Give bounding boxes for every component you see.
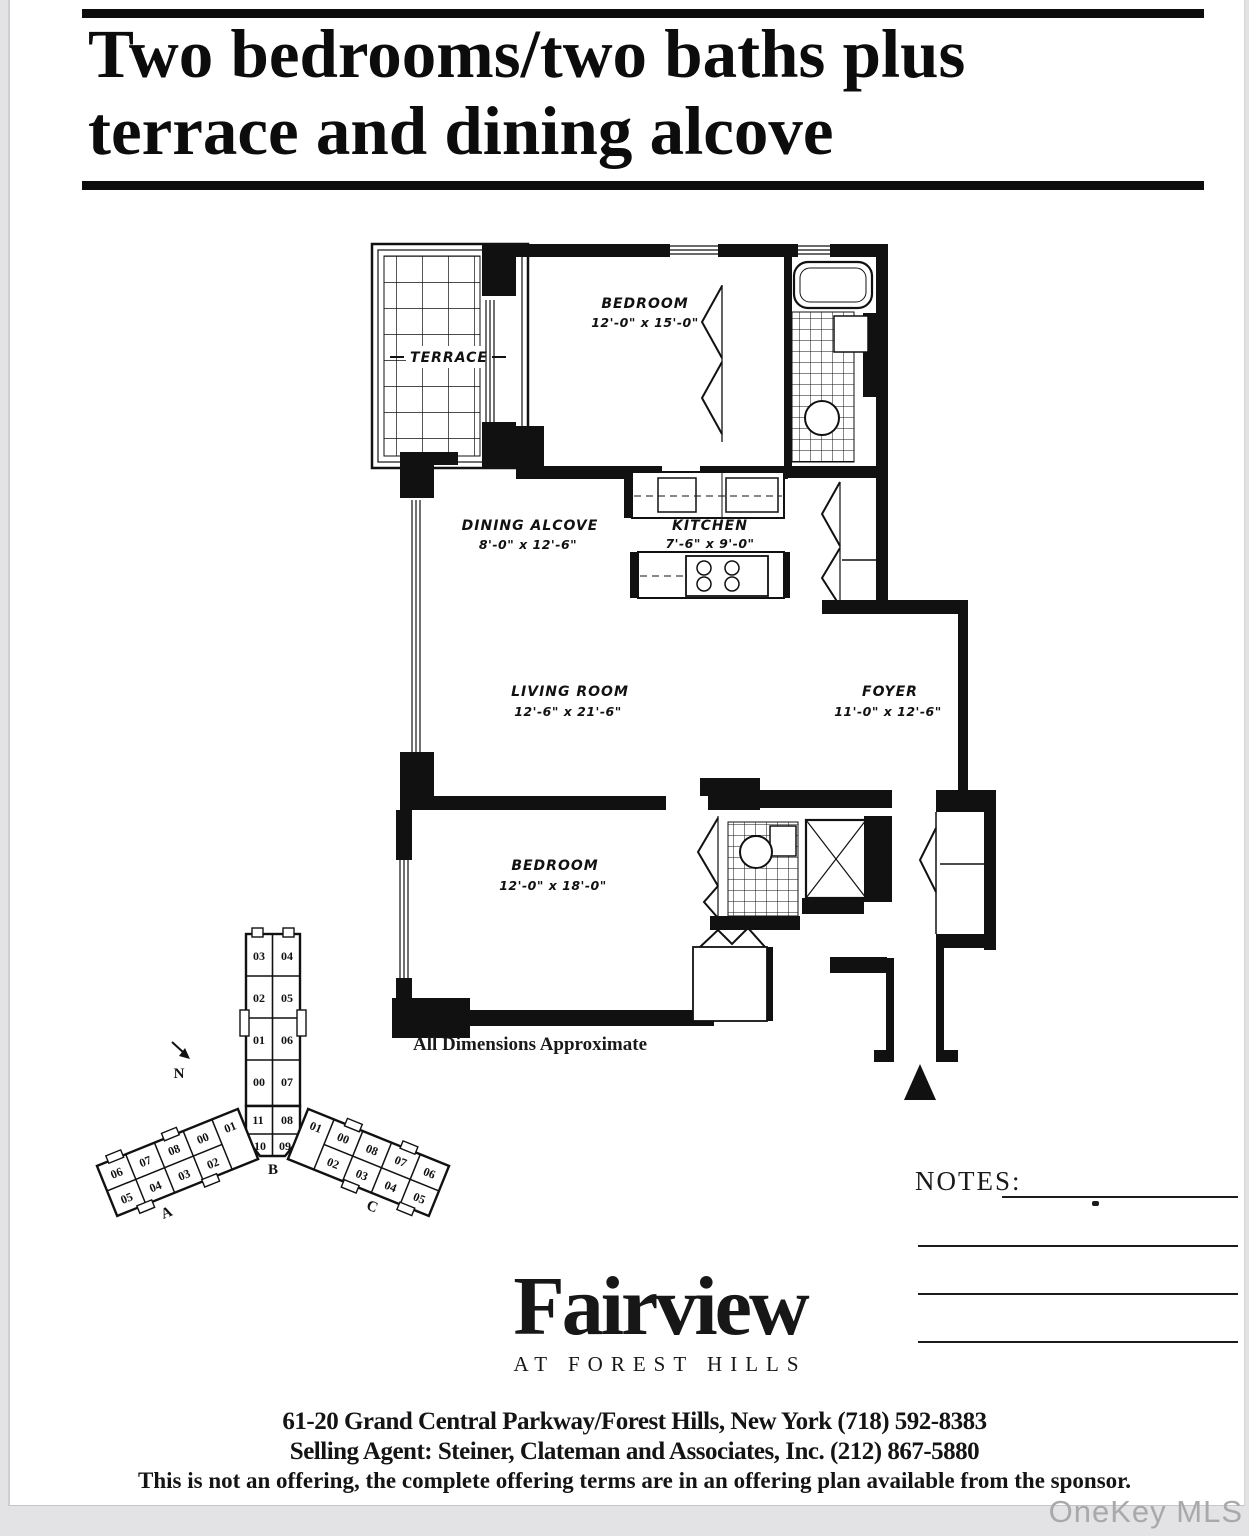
mls-watermark: OneKey MLS [1049, 1494, 1243, 1530]
toilet-2 [770, 826, 796, 856]
unit-label: 04 [281, 949, 293, 963]
brand-tagline: AT FOREST HILLS [410, 1352, 910, 1377]
entry-marker [904, 1064, 936, 1100]
title-underline-rule [82, 181, 1204, 190]
foyer-dims: 11'-0" x 12'-6" [834, 704, 942, 719]
wing-b-label: B [268, 1162, 278, 1178]
unit-label: 02 [253, 991, 265, 1005]
paper-sheet: Two bedrooms/two baths plus terrace and … [8, 0, 1245, 1506]
building-key-plan: N 03 04 02 05 01 06 00 07 [80, 912, 490, 1252]
bedroom2-closet [693, 947, 767, 1021]
footer-address-block: 61-20 Grand Central Parkway/Forest Hills… [10, 1407, 1249, 1467]
address-line: 61-20 Grand Central Parkway/Forest Hills… [10, 1407, 1249, 1437]
unit-label: 03 [253, 949, 265, 963]
wing-a-label: A [159, 1204, 175, 1223]
bathroom2 [698, 816, 892, 930]
brand-logo: Fairview [410, 1266, 910, 1348]
notes-line [918, 1293, 1238, 1295]
living-label: LIVING ROOM [511, 684, 629, 700]
living-dims: 12'-6" x 21'-6" [514, 704, 622, 719]
unit-label: 09 [279, 1139, 291, 1153]
unit-label: 07 [281, 1075, 293, 1089]
unit-label: 00 [253, 1075, 265, 1089]
title-line-1: Two bedrooms/two baths plus [88, 16, 1208, 93]
wing-c-label: C [364, 1198, 380, 1217]
bathroom1 [792, 262, 872, 462]
toilet [834, 316, 868, 352]
ink-speck [1092, 1201, 1099, 1206]
north-arrow-icon: N [172, 1042, 190, 1082]
key-plan-junction: 11 08 10 09 B [246, 1106, 300, 1178]
kitchen-dims: 7'-6" x 9'-0" [665, 536, 754, 551]
key-plan-center-wing: 03 04 02 05 01 06 00 07 [240, 928, 306, 1106]
foyer-closet-door [920, 812, 984, 934]
sink [805, 401, 839, 435]
dining-label: DINING ALCOVE [462, 518, 599, 534]
dining-dims: 8'-0" x 12'-6" [479, 537, 577, 552]
key-plan-wing-a: 06 07 08 00 01 05 04 03 02 A [95, 1103, 267, 1238]
terrace-label: TERRACE [410, 350, 488, 366]
notes-label: NOTES: [915, 1166, 1022, 1197]
unit-label: 11 [252, 1113, 263, 1127]
bedroom2-label: BEDROOM [511, 858, 598, 874]
left-wall [400, 452, 458, 810]
foyer-label: FOYER [862, 684, 918, 700]
notes-line [918, 1341, 1238, 1343]
key-plan-wing-c: 01 00 08 07 06 02 03 04 05 C [280, 1103, 451, 1235]
kitchen-counters [624, 472, 790, 598]
page-title: Two bedrooms/two baths plus terrace and … [88, 16, 1208, 170]
notes-line [918, 1245, 1238, 1247]
bedroom2-dims: 12'-0" x 18'-0" [499, 878, 607, 893]
footer-disclaimer: This is not an offering, the complete of… [10, 1468, 1249, 1494]
bedroom1-label: BEDROOM [601, 296, 688, 312]
title-line-2: terrace and dining alcove [88, 93, 1208, 170]
entry-area [693, 928, 936, 1100]
unit-label: 06 [281, 1033, 293, 1047]
sink-2 [740, 836, 772, 868]
bedroom1-dims: 12'-0" x 15'-0" [591, 315, 699, 330]
brand-block: Fairview AT FOREST HILLS [410, 1266, 910, 1377]
unit-label: 08 [281, 1113, 293, 1127]
notes-line [1002, 1196, 1238, 1198]
agent-line: Selling Agent: Steiner, Clateman and Ass… [10, 1437, 1249, 1467]
unit-label: 05 [281, 991, 293, 1005]
shower [806, 820, 866, 898]
kitchen-label: KITCHEN [672, 518, 748, 534]
windows [486, 242, 830, 422]
bath2-doors [698, 816, 718, 920]
dimensions-note: All Dimensions Approximate [413, 1034, 647, 1056]
bedroom1-closet-doors [702, 285, 722, 442]
unit-label: 01 [253, 1033, 265, 1047]
north-label: N [174, 1066, 185, 1082]
scanned-page: Two bedrooms/two baths plus terrace and … [0, 0, 1249, 1536]
